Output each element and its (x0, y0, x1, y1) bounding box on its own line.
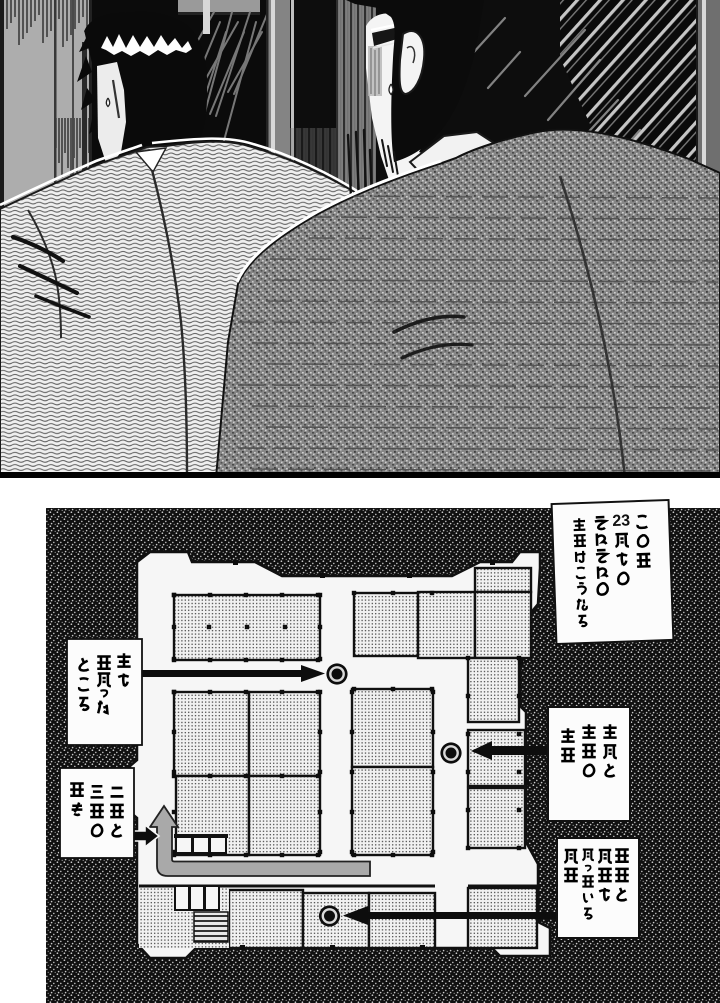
svg-text:23: 23 (612, 512, 630, 530)
